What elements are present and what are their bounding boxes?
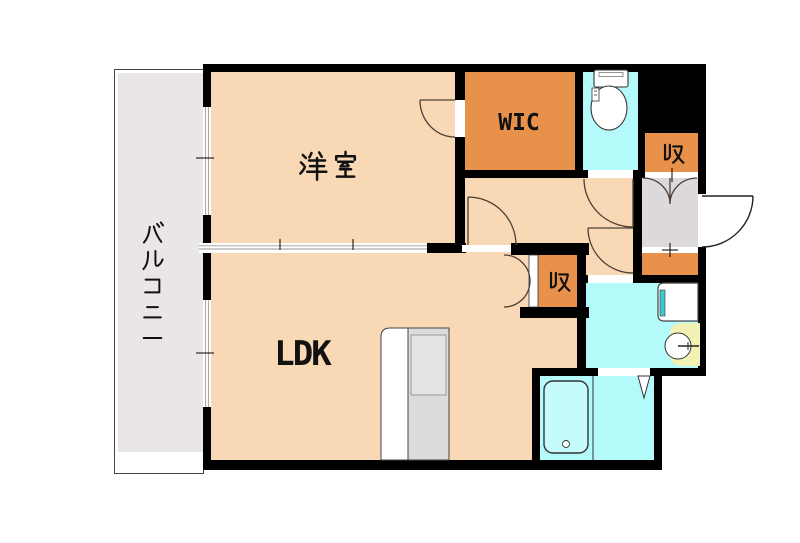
room-ldk-closet-front xyxy=(511,255,529,307)
room-storage-upper xyxy=(645,133,698,172)
room-bedroom xyxy=(211,72,455,243)
ldk-hall-opening xyxy=(462,245,511,252)
bath-door-opening xyxy=(598,369,650,376)
wic-label: WIC xyxy=(492,110,546,136)
window-bedroom xyxy=(203,107,211,215)
room-hallway-ext xyxy=(583,245,633,275)
sliding-partition xyxy=(199,243,427,253)
wic-door-opening xyxy=(455,100,465,137)
entry-door-opening xyxy=(698,194,706,247)
bathtub-icon xyxy=(544,376,593,460)
floor-plan-canvas xyxy=(0,0,800,543)
kitchen-counter-icon xyxy=(381,328,449,460)
room-ldk xyxy=(211,252,532,460)
toilet-icon xyxy=(591,70,628,130)
washroom-door-opening xyxy=(588,275,633,283)
room-storage-lower xyxy=(538,255,579,307)
room-hallway xyxy=(465,178,633,245)
ldk-label: LDK xyxy=(269,334,335,374)
toilet-door-opening xyxy=(588,170,633,178)
washing-machine-icon xyxy=(658,283,698,321)
floor-plan: WIC LDK バルコニー 洋室 収 収 xyxy=(0,0,800,543)
room-ldk-ext xyxy=(529,318,577,368)
